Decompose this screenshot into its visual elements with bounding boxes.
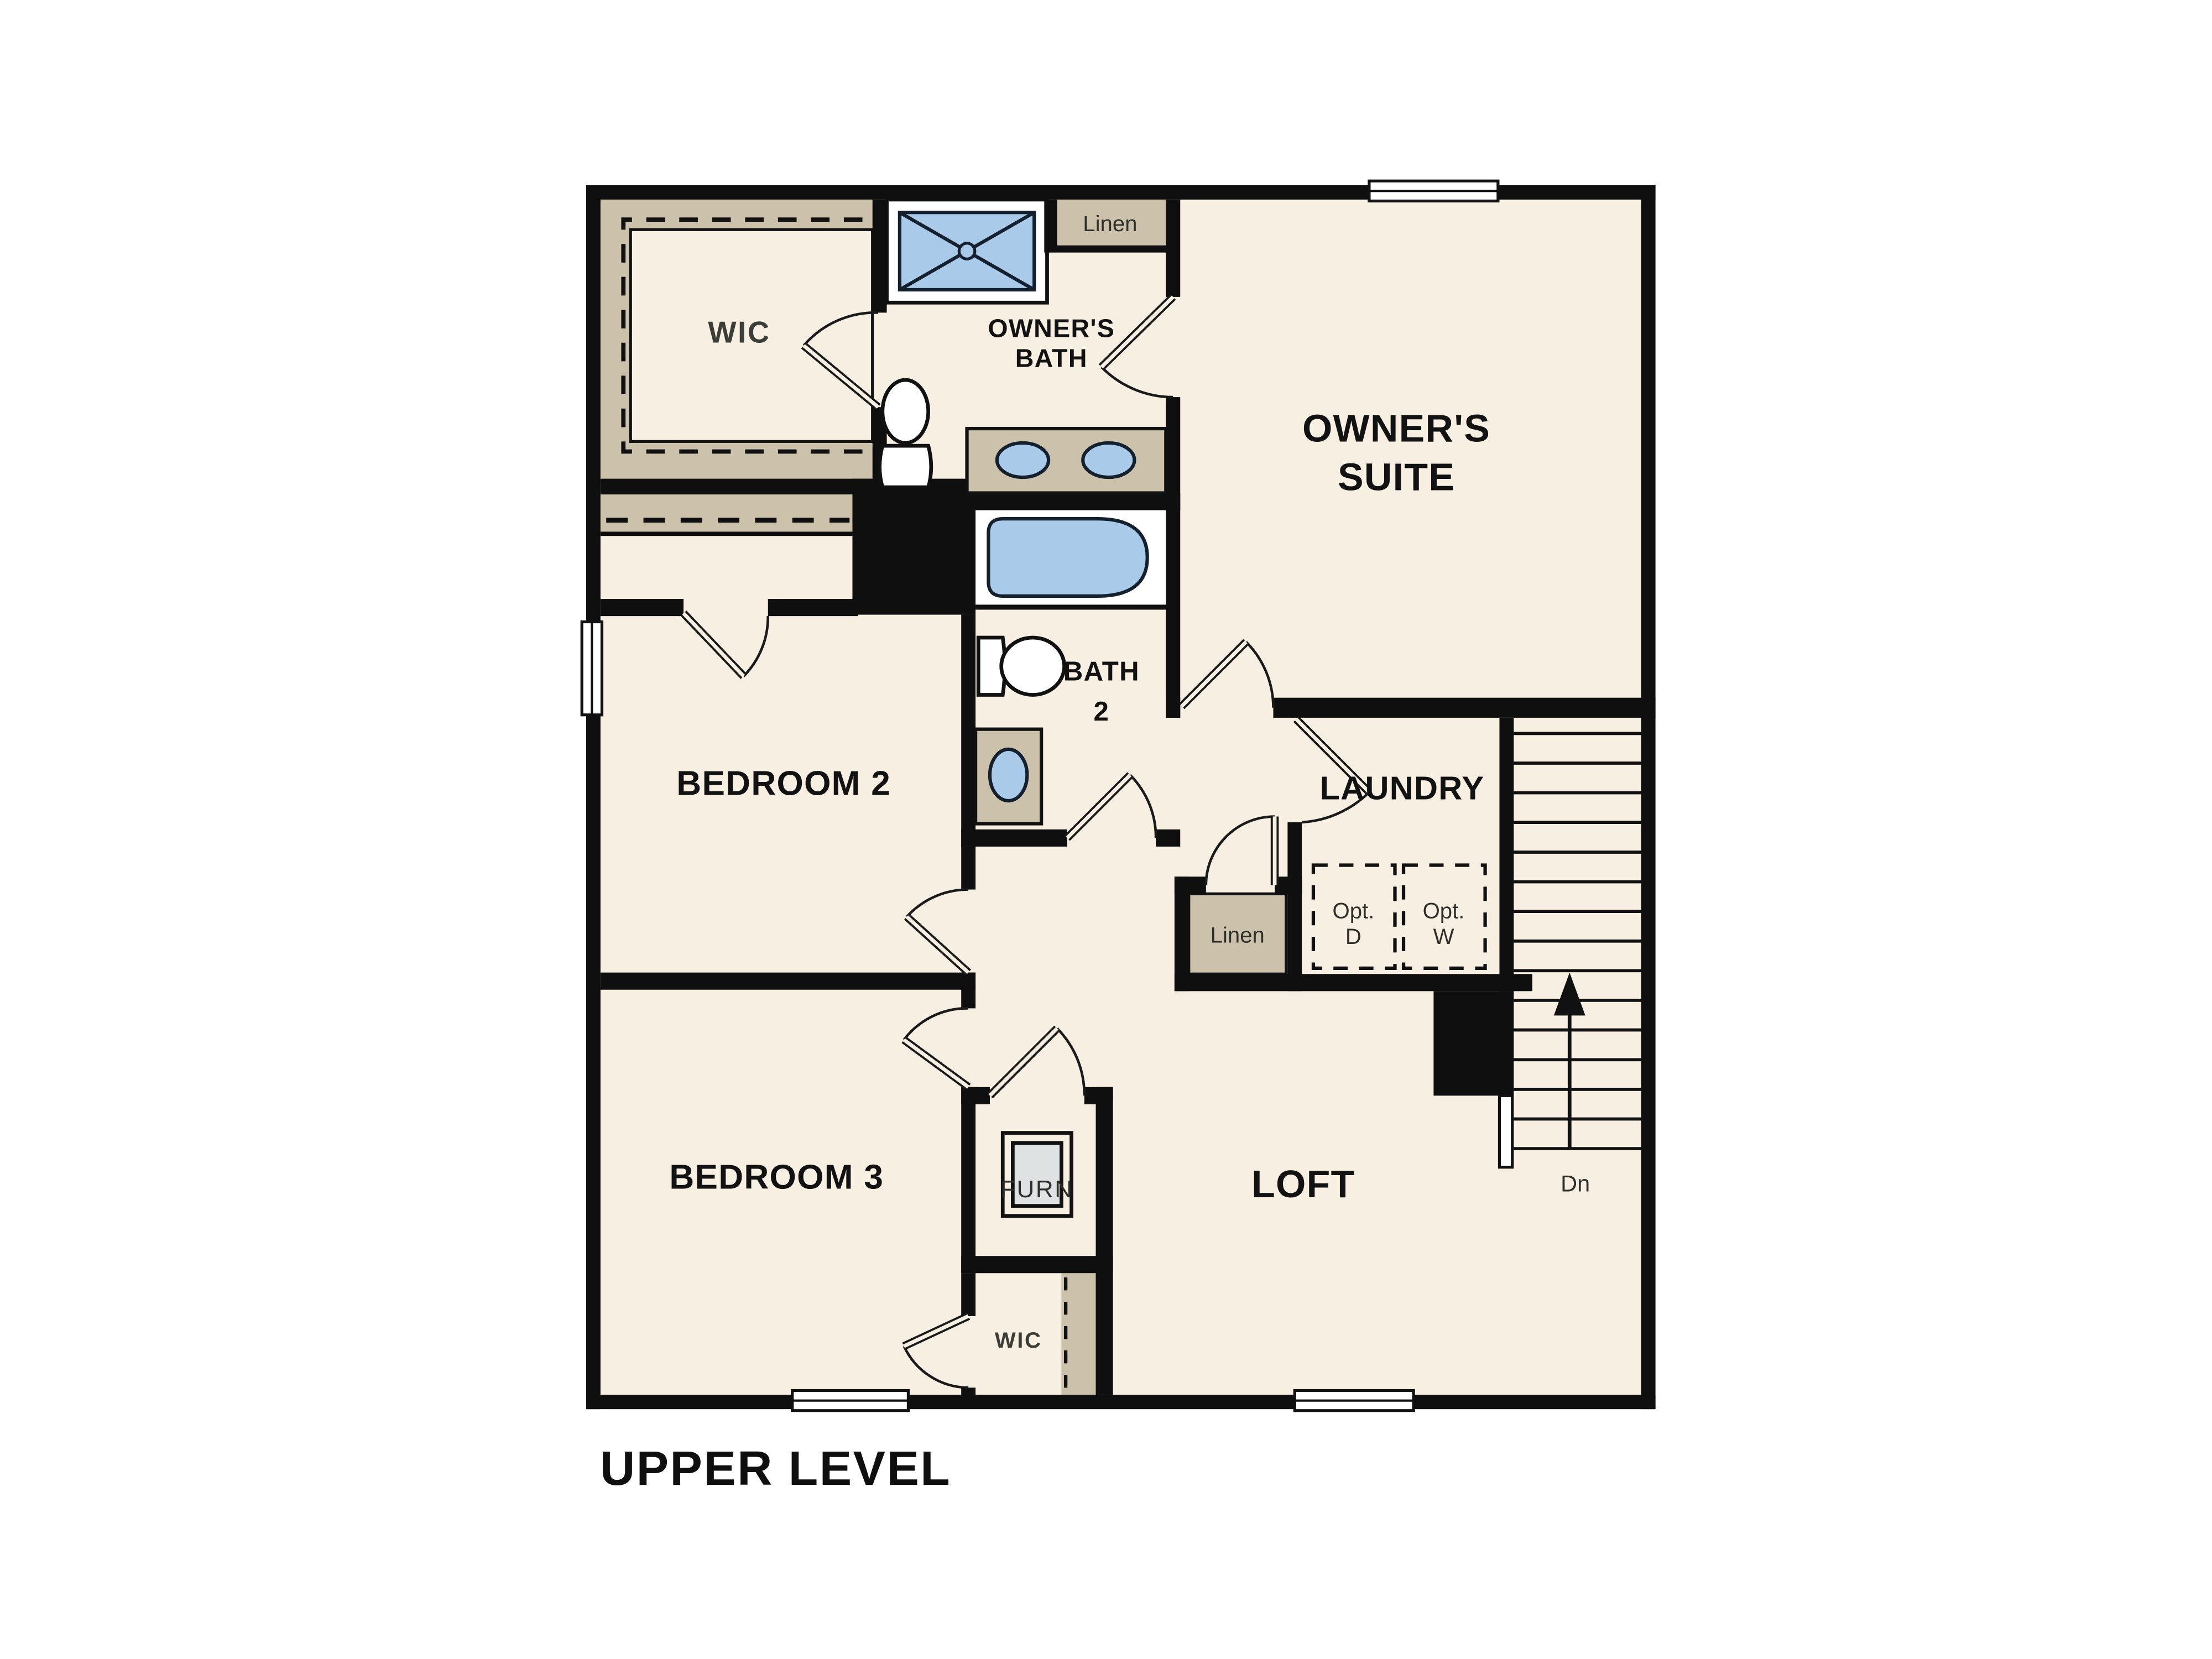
bathtub-icon: [988, 519, 1147, 596]
owners-suite-label-2: SUITE: [1338, 455, 1455, 498]
sink-icon: [990, 749, 1027, 801]
owners-bath-label-2: BATH: [1015, 344, 1088, 373]
bath2-vanity: [975, 729, 1041, 824]
linen-bottom-label: Linen: [1211, 922, 1265, 947]
shower-drain-icon: [959, 243, 974, 259]
owners-bath-toilet: [880, 380, 931, 487]
owners-bath-label-1: OWNER'S: [988, 314, 1115, 342]
opt-w-label-1: Opt.: [1423, 898, 1465, 923]
bath2-label-2: 2: [1094, 696, 1110, 727]
bath2-toilet: [978, 638, 1064, 695]
window-owners-suite: [1369, 181, 1498, 201]
loft-label: LOFT: [1251, 1162, 1355, 1206]
bedroom2-closet-fill: [601, 494, 853, 531]
furnace-unit: [1003, 1133, 1071, 1216]
laundry-label: LAUNDRY: [1320, 769, 1485, 806]
window-bedroom3: [792, 1391, 909, 1411]
floor-plan-page: Dn Opt.: [0, 0, 2212, 1659]
toilet-icon: [883, 380, 928, 443]
bedroom2-closet: [601, 494, 853, 536]
toilet-icon: [1001, 638, 1065, 695]
opt-w-label-2: W: [1433, 924, 1454, 949]
sink-icon: [1083, 443, 1134, 477]
owners-bath-vanity: [967, 429, 1166, 493]
upper-level-plan: Dn Opt.: [582, 181, 1655, 1411]
bedroom2-label: BEDROOM 2: [676, 765, 891, 803]
owners-suite-label-1: OWNER'S: [1302, 406, 1490, 450]
wic-top-label: WIC: [708, 316, 770, 349]
opt-d-label-2: D: [1345, 924, 1361, 949]
owners-shower: [887, 200, 1047, 302]
page-title: UPPER LEVEL: [600, 1441, 951, 1495]
wic-bottom-label: WIC: [995, 1328, 1042, 1353]
tub-alcove-front-line: [975, 604, 1166, 609]
linen-top-label: Linen: [1083, 211, 1137, 236]
bath2-tub-alcove: [975, 510, 1166, 610]
bedroom3-label: BEDROOM 3: [669, 1159, 884, 1197]
furnace-label: FURN: [1000, 1176, 1074, 1203]
window-loft: [1295, 1391, 1413, 1411]
bath2-label-1: BATH: [1063, 656, 1140, 687]
window-bedroom2: [582, 622, 602, 714]
wic2-closet-strip: [1061, 1273, 1095, 1395]
stair-railing: [1499, 1095, 1512, 1167]
floor-plan-drawing: Dn Opt.: [0, 0, 2212, 1659]
sink-icon: [997, 443, 1048, 477]
stairs-down-label: Dn: [1561, 1171, 1590, 1197]
opt-d-label-1: Opt.: [1333, 898, 1375, 923]
closet-front-line: [601, 531, 853, 536]
linen-top-front-wall: [1057, 246, 1166, 253]
